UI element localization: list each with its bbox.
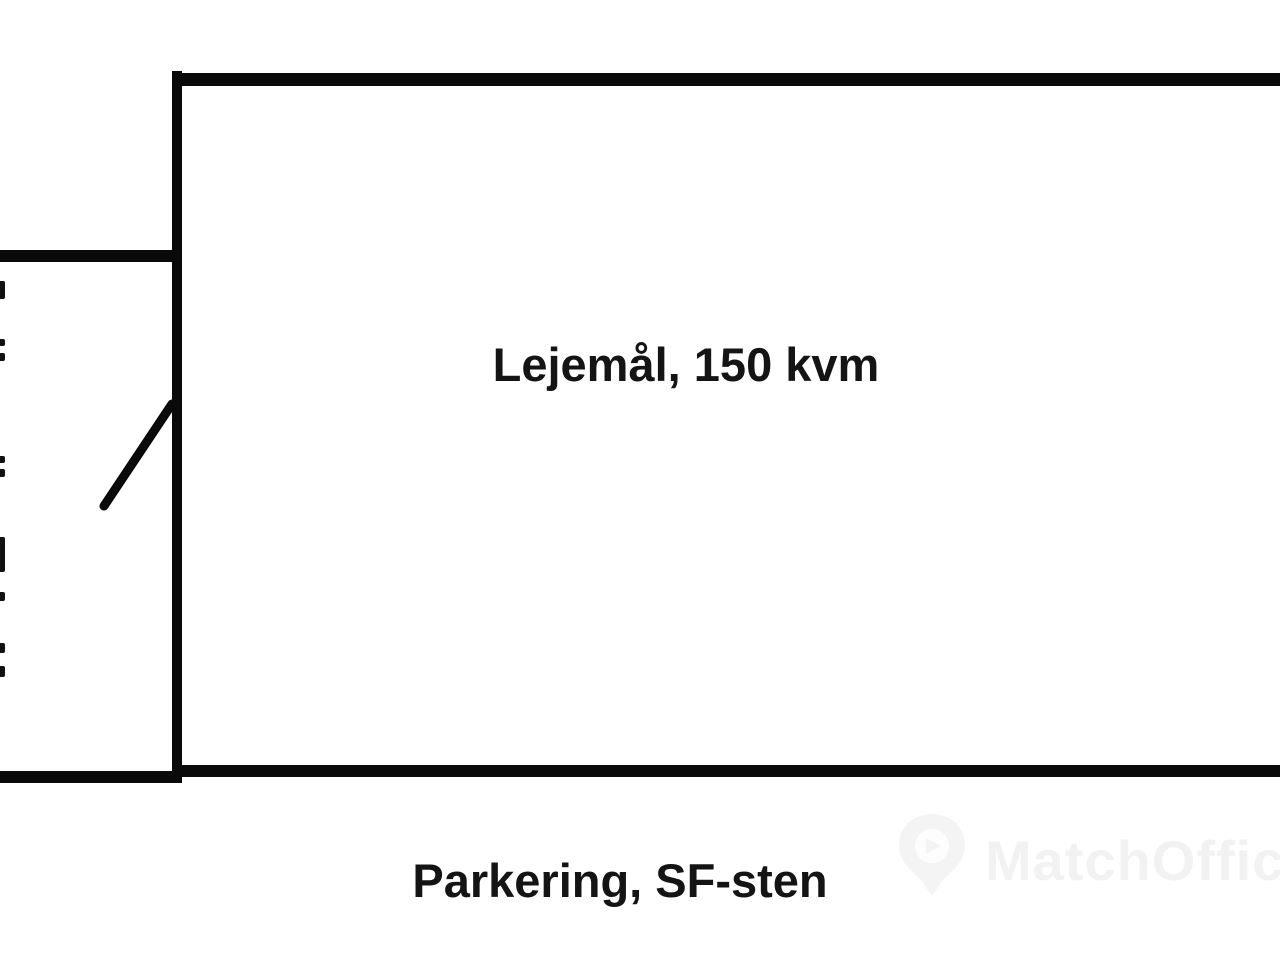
adjacent-wall-top: [0, 250, 182, 262]
unit-wall-left: [172, 71, 182, 778]
floorplan-canvas: Lejemål, 150 kvm Parkering, SF-sten Matc…: [0, 0, 1280, 960]
watermark: MatchOffice: [893, 810, 1280, 910]
unit-wall-top: [172, 73, 1280, 86]
edge-dash: [0, 281, 5, 299]
edge-dash: [0, 353, 5, 361]
edge-dash: [0, 643, 5, 653]
unit-area-label: Lejemål, 150 kvm: [436, 337, 936, 392]
parking-label: Parkering, SF-sten: [370, 853, 870, 908]
unit-wall-bottom: [172, 765, 1280, 777]
edge-dash: [0, 339, 5, 346]
edge-dash: [0, 456, 5, 463]
watermark-brand-text: MatchOffice: [985, 828, 1280, 893]
edge-dash: [0, 666, 5, 677]
edge-dash: [0, 592, 5, 601]
edge-dash: [0, 469, 5, 477]
map-pin-icon: [893, 810, 971, 910]
edge-dash: [0, 537, 5, 572]
adjacent-wall-bottom: [0, 771, 182, 783]
